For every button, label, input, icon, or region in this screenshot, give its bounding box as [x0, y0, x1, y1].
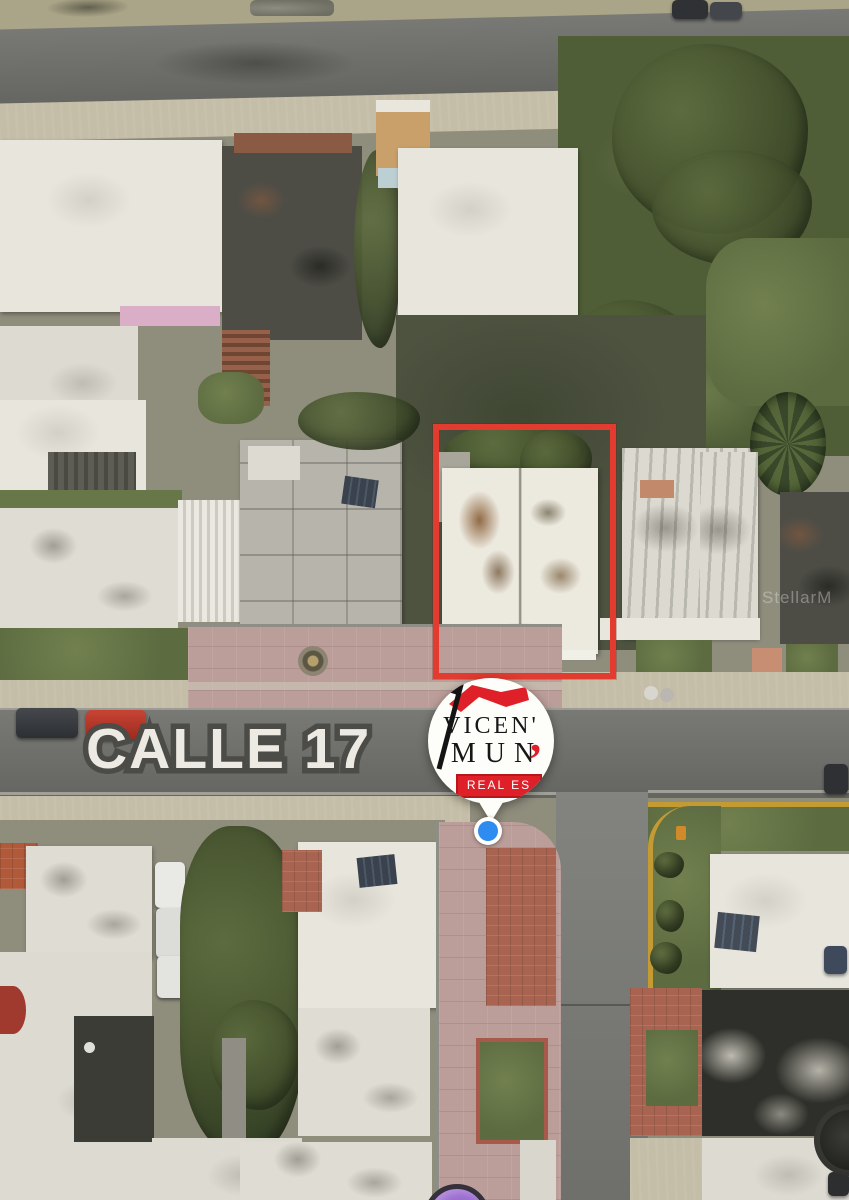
red-awning	[0, 986, 26, 1034]
hydrant	[676, 826, 686, 840]
building-roof	[398, 148, 578, 324]
curb-line	[648, 790, 849, 793]
shrub	[650, 942, 682, 974]
roof-section-white	[248, 446, 300, 480]
pin-balloon: VICEN' MUN ’ REAL ES	[428, 678, 554, 804]
building-roof	[222, 146, 362, 340]
sidewalk	[630, 1138, 702, 1200]
realtor-map-pin[interactable]: VICEN' MUN ’ REAL ES	[428, 678, 560, 828]
building-roof	[298, 1008, 430, 1136]
parked-car	[672, 0, 708, 19]
satellite-dish	[84, 1042, 95, 1053]
building-roof	[0, 140, 222, 312]
fountain	[298, 646, 328, 676]
solar-panel	[357, 854, 398, 888]
patio-salmon	[752, 648, 782, 674]
planter	[646, 1030, 698, 1106]
tiled-yard	[486, 848, 556, 1006]
building-roof	[700, 452, 758, 638]
street-label: CALLE 17	[82, 700, 412, 800]
solar-panel	[714, 912, 760, 952]
lawn-strip	[0, 628, 190, 682]
corrugated-roof	[178, 500, 244, 622]
lawn-strip	[0, 490, 182, 510]
grass-patch	[198, 372, 264, 424]
solar-panel	[341, 476, 379, 508]
shed-roof	[222, 1038, 246, 1138]
parked-car	[824, 764, 848, 794]
logo-banner: REAL ES	[456, 774, 542, 798]
tile-roof	[282, 850, 322, 912]
location-dot-core	[478, 821, 498, 841]
parked-car	[824, 946, 847, 974]
building-roof	[26, 846, 152, 958]
curb-wall	[600, 618, 760, 640]
trash-bins	[644, 686, 658, 700]
property-highlight-box	[433, 424, 616, 679]
roof-patch-salmon	[640, 480, 674, 498]
walkway	[520, 1140, 556, 1200]
palm-tree	[750, 392, 826, 496]
grass-patch	[706, 238, 849, 406]
dark-roof	[74, 1016, 154, 1142]
brick-parapet	[234, 133, 352, 153]
tree-shadow	[120, 34, 390, 92]
parked-car	[710, 2, 742, 19]
street-label-text: CALLE 17	[86, 717, 371, 781]
shrub	[654, 852, 684, 878]
building-roof-pink-strip	[120, 306, 220, 326]
planter	[476, 1038, 548, 1144]
building-roof	[240, 1142, 432, 1200]
stock-watermark: StellarM	[762, 588, 832, 608]
parked-car	[16, 708, 78, 738]
roadside-debris	[250, 0, 334, 16]
tree-canopy	[298, 392, 420, 450]
location-dot-marker[interactable]	[474, 817, 502, 845]
building-roof	[780, 492, 849, 644]
satellite-map-canvas[interactable]: StellarM CALLE 17 VICEN' MUN ’ REAL ES	[0, 0, 849, 1200]
building-roof	[0, 508, 178, 634]
shrub	[656, 900, 684, 932]
